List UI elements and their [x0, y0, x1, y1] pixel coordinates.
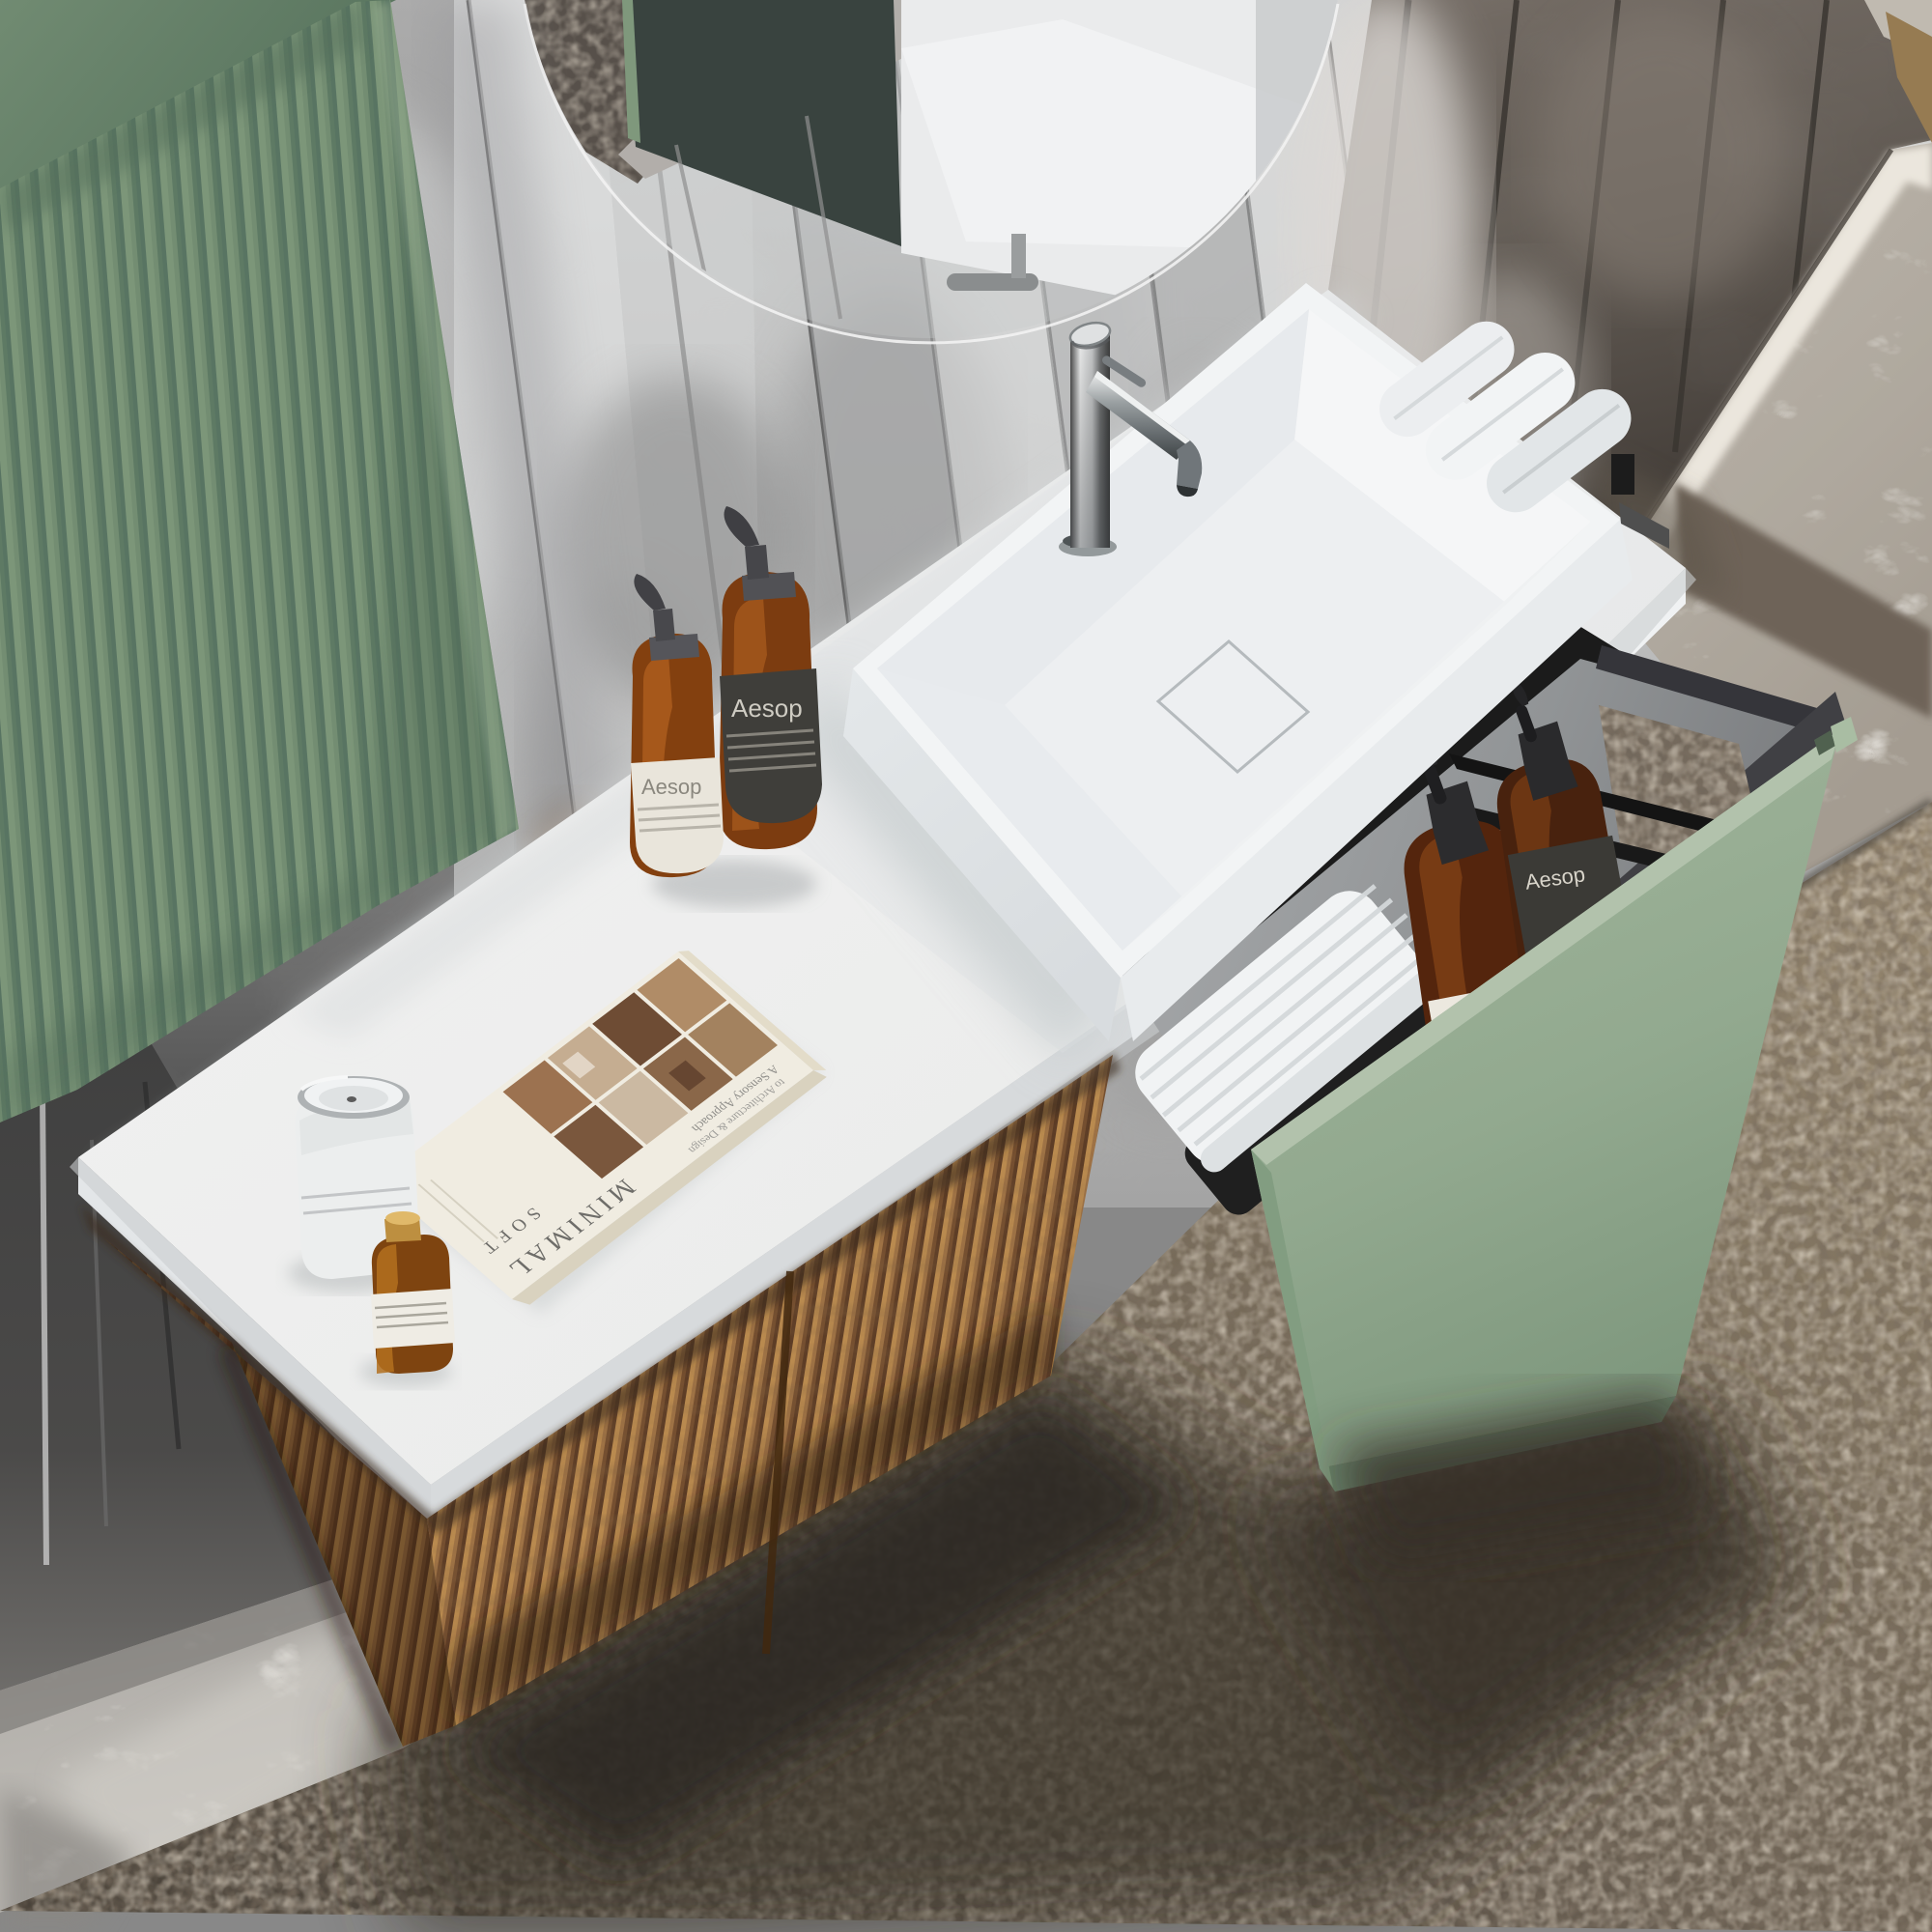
- svg-text:Aesop: Aesop: [641, 775, 701, 799]
- svg-text:Aesop: Aesop: [731, 694, 803, 723]
